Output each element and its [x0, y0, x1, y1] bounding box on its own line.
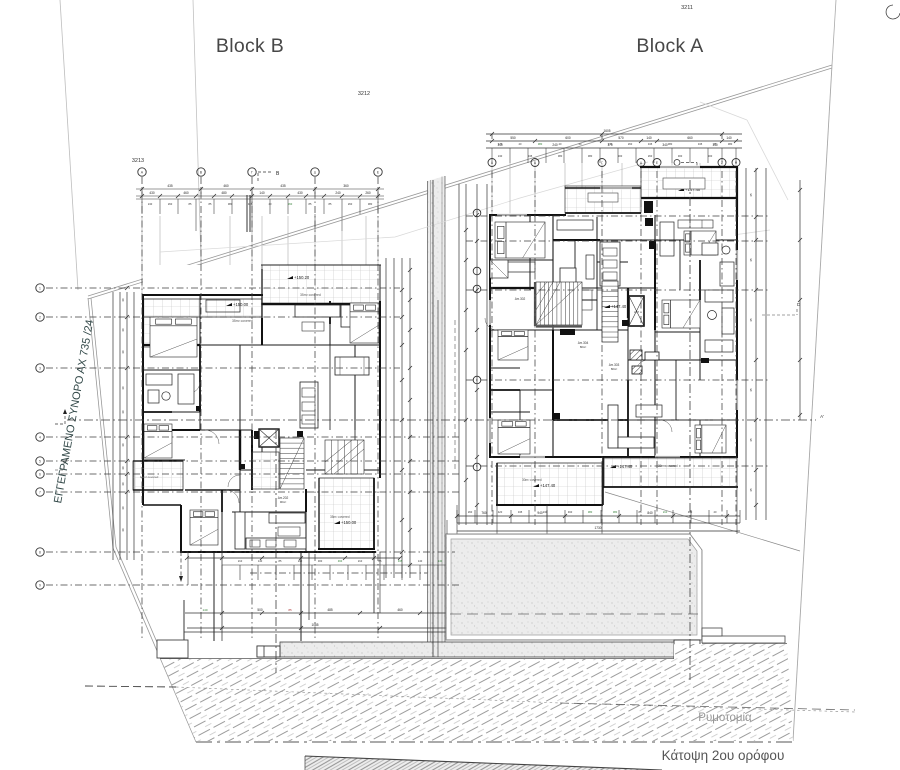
svg-text:3: 3 — [39, 367, 41, 371]
svg-text:380: 380 — [613, 510, 618, 514]
svg-text:35: 35 — [749, 438, 753, 442]
svg-text:260: 260 — [168, 202, 173, 206]
svg-text:345: 345 — [528, 154, 533, 158]
svg-text:260: 260 — [628, 142, 633, 146]
svg-text:360: 360 — [343, 184, 349, 188]
svg-text:Γ: Γ — [601, 161, 603, 165]
svg-text:1085: 1085 — [311, 623, 318, 627]
svg-text:LIFT: LIFT — [634, 311, 639, 314]
svg-text:+150.20: +150.20 — [294, 275, 310, 280]
svg-text:6: 6 — [39, 473, 41, 477]
svg-text:Γ: Γ — [251, 171, 253, 175]
svg-text:30m² covered: 30m² covered — [522, 478, 542, 482]
svg-text:30: 30 — [121, 328, 125, 332]
svg-text:35: 35 — [749, 488, 753, 492]
svg-text:300: 300 — [618, 154, 623, 158]
svg-text:460: 460 — [338, 559, 343, 563]
svg-text:3212: 3212 — [358, 91, 370, 97]
svg-text:30: 30 — [121, 298, 125, 302]
svg-text:210: 210 — [663, 510, 668, 514]
svg-text:260: 260 — [648, 154, 653, 158]
svg-text:345: 345 — [698, 142, 703, 146]
svg-text:35: 35 — [749, 193, 753, 197]
svg-text:760: 760 — [481, 511, 487, 515]
svg-text:4: 4 — [39, 436, 41, 440]
svg-text:240: 240 — [552, 143, 558, 147]
svg-text:140: 140 — [438, 559, 443, 563]
svg-text:435: 435 — [280, 184, 286, 188]
svg-text:660: 660 — [687, 136, 693, 140]
svg-text:380: 380 — [538, 142, 543, 146]
svg-text:3211: 3211 — [681, 5, 693, 11]
svg-text:240: 240 — [335, 191, 341, 195]
svg-text:260: 260 — [365, 191, 371, 195]
svg-text:140: 140 — [202, 608, 207, 612]
svg-text:380: 380 — [558, 154, 563, 158]
svg-text:460: 460 — [568, 510, 573, 514]
svg-text:240: 240 — [148, 202, 153, 206]
svg-text:30: 30 — [121, 466, 125, 470]
svg-text:170: 170 — [498, 142, 503, 146]
svg-text:3213: 3213 — [132, 158, 144, 164]
svg-text:240: 240 — [543, 510, 548, 514]
svg-text:260: 260 — [468, 510, 473, 514]
svg-text:30: 30 — [121, 386, 125, 390]
svg-text:435: 435 — [167, 184, 173, 188]
svg-text:600: 600 — [565, 136, 571, 140]
svg-text:380: 380 — [588, 510, 593, 514]
svg-text:Ρυμοτομία: Ρυμοτομία — [698, 712, 752, 724]
svg-text:345: 345 — [398, 559, 403, 563]
svg-text:80m²: 80m² — [580, 345, 586, 349]
svg-text:380: 380 — [228, 202, 233, 206]
svg-text:85: 85 — [288, 608, 292, 612]
svg-text:35: 35 — [749, 318, 753, 322]
svg-text:570: 570 — [618, 136, 624, 140]
svg-text:30: 30 — [121, 443, 125, 447]
svg-text:380: 380 — [668, 142, 673, 146]
svg-text:35m² covered: 35m² covered — [330, 515, 350, 519]
svg-text:300: 300 — [318, 559, 323, 563]
svg-text:30: 30 — [121, 350, 125, 354]
svg-text:260: 260 — [348, 202, 353, 206]
svg-text:30: 30 — [121, 506, 125, 510]
svg-text:380: 380 — [368, 202, 373, 206]
svg-text:840: 840 — [647, 511, 653, 515]
svg-text:480: 480 — [221, 191, 227, 195]
svg-text:380: 380 — [728, 142, 733, 146]
svg-text:+147.40: +147.40 — [617, 464, 633, 469]
svg-text:7: 7 — [39, 491, 41, 495]
svg-text:35m² covered: 35m² covered — [232, 319, 253, 323]
svg-text:140: 140 — [608, 142, 613, 146]
svg-text:Block A: Block A — [636, 35, 703, 57]
svg-text:300: 300 — [708, 154, 713, 158]
svg-text:80m²: 80m² — [611, 367, 617, 371]
svg-text:+147.40: +147.40 — [540, 483, 556, 488]
svg-text:210: 210 — [298, 559, 303, 563]
svg-text:460: 460 — [183, 191, 189, 195]
svg-text:35: 35 — [749, 258, 753, 262]
svg-text:140: 140 — [418, 559, 423, 563]
svg-text:140: 140 — [646, 136, 652, 140]
svg-text:Block B: Block B — [216, 35, 284, 57]
svg-text:500: 500 — [257, 608, 263, 612]
svg-text:90m²: 90m² — [280, 500, 286, 504]
svg-text:Aπ.302: Aπ.302 — [515, 297, 526, 301]
svg-text:140: 140 — [726, 136, 732, 140]
svg-text:30: 30 — [121, 482, 125, 486]
svg-text:35: 35 — [749, 388, 753, 392]
svg-text:300: 300 — [678, 154, 683, 158]
svg-text:Ζ: Ζ — [721, 161, 723, 165]
svg-text:210: 210 — [238, 559, 243, 563]
svg-text:+150.00: +150.00 — [233, 302, 249, 307]
svg-text:2: 2 — [39, 316, 41, 320]
svg-text:A': A' — [820, 414, 824, 419]
svg-text:260: 260 — [288, 202, 293, 206]
svg-text:9: 9 — [39, 584, 41, 588]
svg-text:1730: 1730 — [594, 526, 601, 530]
svg-text:+150.00: +150.00 — [341, 520, 357, 525]
svg-text:210: 210 — [358, 559, 363, 563]
svg-text:345: 345 — [518, 510, 523, 514]
svg-text:+147.40: +147.40 — [611, 304, 627, 309]
svg-text:240: 240 — [498, 154, 503, 158]
svg-text:460: 460 — [397, 608, 403, 612]
svg-text:35m² covered: 35m² covered — [300, 293, 321, 297]
svg-text:140: 140 — [259, 191, 265, 195]
svg-text:380: 380 — [588, 154, 593, 158]
svg-text:420: 420 — [498, 510, 503, 514]
svg-text:140: 140 — [258, 559, 263, 563]
svg-text:345: 345 — [648, 142, 653, 146]
svg-text:550: 550 — [510, 136, 516, 140]
svg-text:460: 460 — [223, 184, 229, 188]
svg-text:10m² covered: 10m² covered — [140, 475, 159, 479]
svg-text:1605: 1605 — [603, 129, 610, 133]
svg-text:8: 8 — [39, 551, 41, 555]
svg-text:430: 430 — [297, 191, 303, 195]
svg-text:430: 430 — [149, 191, 155, 195]
svg-text:5: 5 — [39, 460, 41, 464]
svg-text:30: 30 — [121, 528, 125, 532]
svg-text:485: 485 — [327, 608, 333, 612]
svg-text:30: 30 — [121, 410, 125, 414]
svg-text:Κάτοψη 2ου ορόφου: Κάτοψη 2ου ορόφου — [662, 748, 785, 763]
svg-text:1: 1 — [39, 287, 41, 291]
